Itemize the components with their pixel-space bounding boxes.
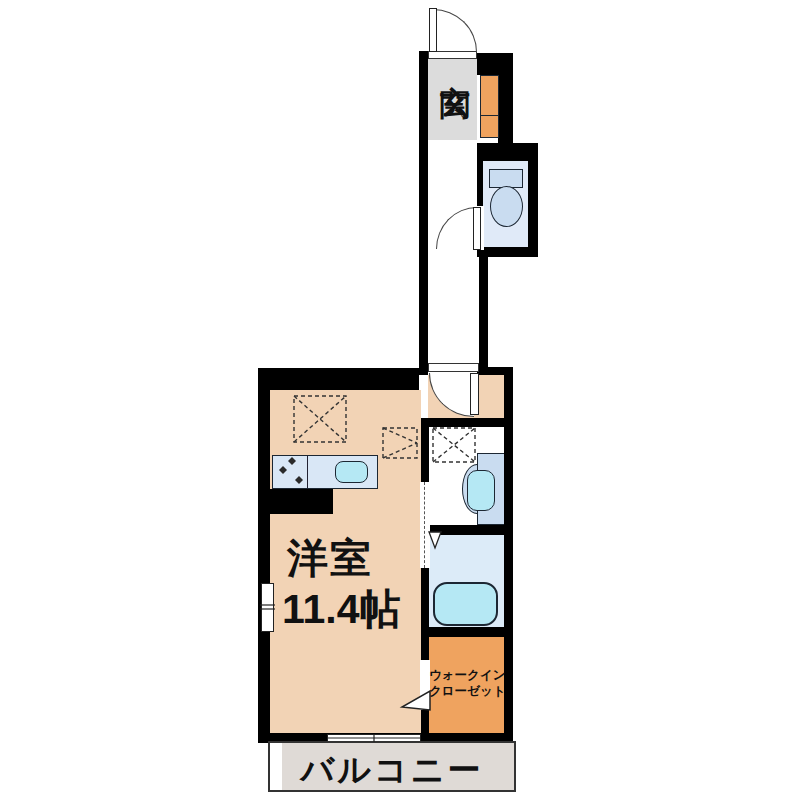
genkan-right-wall bbox=[498, 75, 513, 145]
washbasin-sink bbox=[467, 470, 495, 511]
room-left-wall bbox=[258, 390, 270, 743]
washroom-opening-dashed-line bbox=[424, 482, 425, 568]
room-top-wall bbox=[258, 368, 419, 390]
floor-plan: 玄関 洋室 11.4帖 ウォークイン クローゼット バルコニー bbox=[0, 0, 800, 800]
kitchen-counter-divider bbox=[307, 456, 308, 488]
room-door bbox=[470, 373, 479, 415]
entry-door-arc bbox=[433, 9, 477, 52]
shoe-cabinet-lower bbox=[480, 115, 499, 138]
hall-left-wall bbox=[419, 51, 428, 375]
room-threshold bbox=[428, 363, 479, 372]
genkan-label: 玄関 bbox=[434, 62, 475, 72]
genkan-top-right-wall bbox=[477, 53, 513, 75]
kitchen-sink bbox=[335, 461, 368, 483]
walk-in-closet-label-line1: ウォークイン bbox=[429, 667, 504, 684]
shoe-cabinet-upper bbox=[480, 75, 499, 116]
wash-bath-divider-wall bbox=[429, 525, 504, 535]
unit-right-wall bbox=[504, 367, 513, 743]
toilet-door bbox=[473, 207, 481, 250]
toilet-bowl bbox=[490, 186, 523, 227]
entry-door bbox=[429, 8, 437, 52]
balcony-label: バルコニー bbox=[282, 748, 502, 793]
main-room-size: 11.4帖 bbox=[282, 582, 401, 637]
bathtub bbox=[433, 582, 498, 626]
kitchen-side-wall bbox=[270, 489, 333, 514]
hallway-floor bbox=[428, 140, 479, 365]
balcony-left-gap bbox=[270, 743, 282, 790]
hall-right-wall bbox=[479, 257, 488, 375]
washroom-opening bbox=[420, 482, 430, 568]
main-room-label: 洋室 bbox=[287, 531, 373, 586]
washroom-top-wall bbox=[421, 418, 504, 427]
entry-threshold bbox=[428, 51, 477, 59]
left-wall-window bbox=[261, 583, 274, 632]
walk-in-closet-label-line2: クローゼット bbox=[429, 683, 504, 700]
bath-closet-divider-wall bbox=[429, 627, 504, 637]
